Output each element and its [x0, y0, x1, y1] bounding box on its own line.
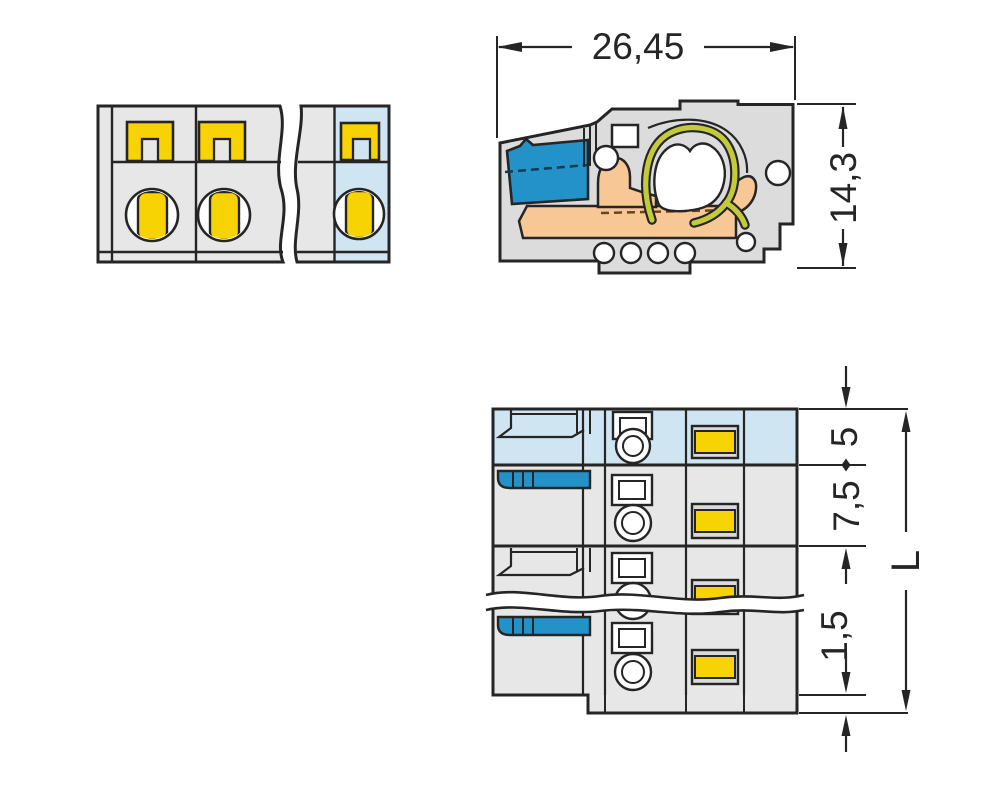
dim-width-label: 26,45	[592, 26, 685, 67]
clamp-insert	[138, 192, 167, 240]
flange-background	[588, 695, 797, 713]
dimension-height: 14,3	[797, 104, 864, 268]
dim-height-label: 14,3	[823, 152, 864, 224]
spring-cavity	[654, 144, 724, 212]
clamp-insert	[210, 192, 239, 240]
arrowhead-down	[842, 387, 851, 408]
clamp-insert	[346, 191, 373, 238]
dimension-point	[842, 459, 851, 472]
housing-hole	[766, 161, 790, 185]
arrowhead-left	[497, 42, 522, 52]
housing-hole	[675, 243, 695, 263]
arrowhead-down	[842, 672, 851, 693]
arrowhead-up	[842, 548, 851, 569]
technical-drawing-page: 26,45 14,3	[0, 0, 1000, 792]
test-slot	[612, 125, 638, 147]
lever-yellow	[695, 510, 735, 532]
connector-drawing-canvas: 26,45 14,3	[0, 0, 1000, 792]
housing-hole	[648, 243, 668, 263]
arrowhead-down	[839, 243, 848, 266]
lever-yellow	[695, 656, 735, 678]
housing-hole	[737, 233, 755, 251]
dim-7-5-label: 7,5	[826, 480, 867, 531]
arrowhead-down	[902, 690, 911, 711]
dimension-length: L	[884, 411, 928, 711]
front-view	[98, 106, 389, 262]
wire-port-ring	[615, 505, 651, 541]
pushbutton-notch	[142, 139, 158, 162]
dimension-chain-right: 5 7,5 1,5 L	[799, 366, 928, 752]
arrowhead-up	[902, 411, 911, 432]
dim-1-5-label: 1,5	[814, 610, 855, 661]
housing-hole	[594, 146, 618, 170]
pushbutton-notch	[353, 139, 370, 161]
side-view	[500, 101, 793, 273]
housing-hole	[621, 243, 641, 263]
keyhole-ring	[616, 429, 650, 463]
lever-yellow	[695, 431, 735, 453]
arrowhead-up	[842, 715, 851, 736]
wire-port-ring	[615, 654, 651, 690]
arrowhead-right	[770, 42, 795, 52]
dim-5-label: 5	[824, 427, 865, 448]
pushbutton-notch	[214, 139, 230, 162]
arrowhead-up	[839, 106, 848, 129]
housing-hole	[594, 243, 614, 263]
dim-length-label: L	[884, 550, 928, 572]
bottom-view	[486, 409, 804, 713]
pushbutton-top	[498, 617, 590, 635]
pushbutton-top	[498, 471, 590, 488]
